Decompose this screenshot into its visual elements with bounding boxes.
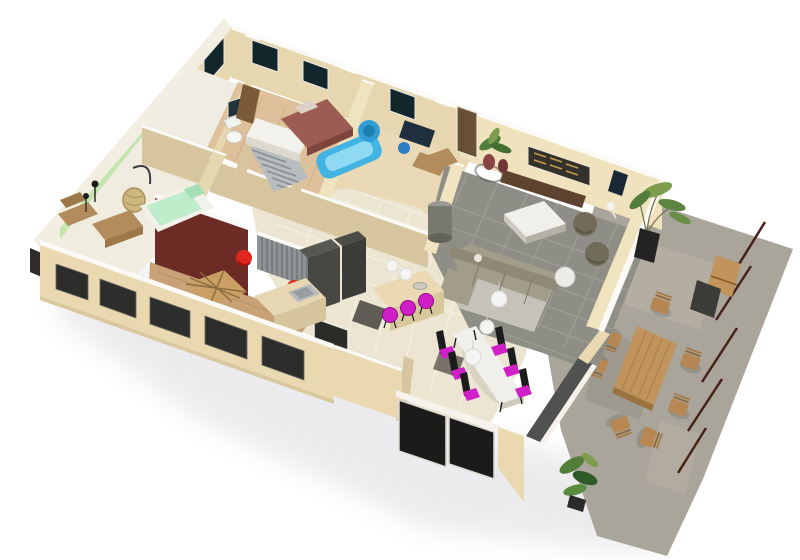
stove-cylinder-base: [428, 233, 452, 243]
blue-chair: [398, 142, 410, 154]
bar-stool: [383, 308, 398, 323]
plant-vase: [498, 159, 508, 173]
pendant-lamp: [400, 268, 412, 280]
bar-stool: [419, 294, 434, 309]
pendant-lamp: [480, 320, 494, 334]
pendant-lamp: [491, 291, 507, 307]
toilet-bowl: [226, 131, 242, 143]
pendant-lamp: [465, 349, 481, 365]
sofa-pillow: [474, 254, 482, 262]
shower-inner: [363, 125, 375, 137]
tall-unit-front: [342, 238, 366, 300]
front-door: [457, 106, 477, 158]
floorplan-render: [0, 0, 800, 560]
side-table: [555, 267, 575, 287]
plant-vase: [483, 154, 495, 170]
bar-stool: [401, 301, 416, 316]
wall-sconce: [607, 202, 615, 210]
floorplan-canvas: [0, 0, 800, 560]
pendant-lamp: [386, 260, 398, 272]
island-sink: [413, 283, 427, 290]
